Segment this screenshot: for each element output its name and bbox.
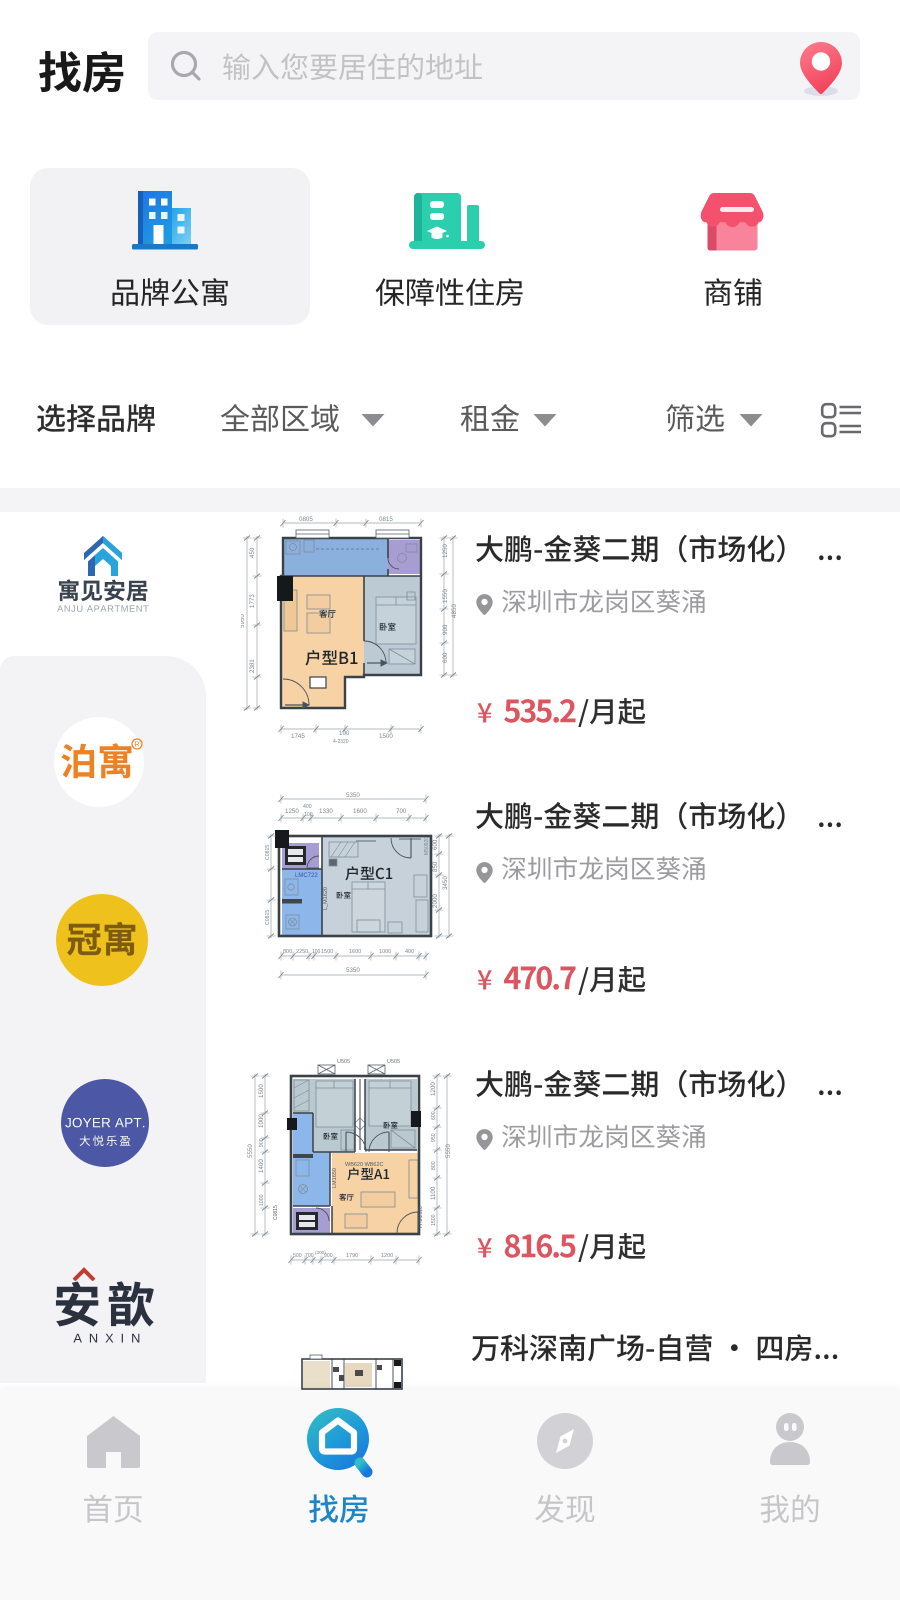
- svg-text:600: 600: [442, 652, 449, 663]
- svg-text:0815: 0815: [379, 516, 393, 523]
- svg-text:LMC722: LMC722: [295, 873, 318, 879]
- svg-text:1790: 1790: [346, 1253, 358, 1259]
- svg-text:5550: 5550: [445, 1144, 452, 1158]
- svg-text:900: 900: [259, 1138, 265, 1147]
- svg-text:100: 100: [312, 949, 321, 955]
- svg-text:4-2320: 4-2320: [333, 739, 349, 745]
- svg-text:FHM2020: FHM2020: [418, 1206, 424, 1228]
- svg-text:C0815: C0815: [265, 910, 271, 925]
- svg-text:5350: 5350: [346, 792, 360, 799]
- svg-text:1200: 1200: [381, 1253, 393, 1259]
- svg-text:100: 100: [304, 812, 313, 818]
- svg-text:600: 600: [431, 1111, 437, 1120]
- svg-text:700: 700: [305, 1253, 314, 1259]
- svg-text:C0815: C0815: [273, 1205, 279, 1220]
- svg-text:LM1650: LM1650: [332, 1168, 338, 1188]
- svg-text:500: 500: [293, 1253, 302, 1259]
- svg-text:1250: 1250: [285, 808, 299, 815]
- svg-text:C0815: C0815: [265, 845, 271, 860]
- svg-text:0805: 0805: [299, 516, 313, 523]
- svg-text:R: R: [134, 742, 139, 749]
- svg-text:600: 600: [432, 839, 439, 850]
- svg-text:850: 850: [432, 861, 439, 872]
- svg-text:5950: 5950: [241, 614, 246, 628]
- svg-text:1500: 1500: [431, 1214, 437, 1226]
- svg-text:1600: 1600: [353, 808, 367, 815]
- svg-text:1550: 1550: [442, 589, 449, 603]
- svg-text:1500: 1500: [379, 733, 393, 740]
- svg-text:1200: 1200: [430, 1082, 437, 1096]
- svg-text:U505: U505: [387, 1059, 400, 1065]
- svg-text:1773: 1773: [249, 594, 256, 608]
- svg-text:400: 400: [303, 804, 312, 810]
- svg-text:1745: 1745: [291, 733, 305, 740]
- svg-text:4850: 4850: [451, 604, 458, 618]
- svg-text:900: 900: [324, 1253, 333, 1259]
- svg-text:U505: U505: [337, 1059, 350, 1065]
- svg-text:1400: 1400: [258, 1159, 265, 1173]
- svg-text:1100: 1100: [430, 1186, 437, 1200]
- svg-text:400: 400: [405, 949, 414, 955]
- svg-text:450: 450: [249, 547, 256, 558]
- svg-text:1500: 1500: [321, 949, 333, 955]
- svg-text:5350: 5350: [346, 967, 360, 974]
- svg-text:1330: 1330: [319, 808, 333, 815]
- svg-text:100: 100: [339, 730, 350, 737]
- svg-text:2381: 2381: [249, 659, 256, 673]
- svg-text:WB620 WB62C: WB620 WB62C: [345, 1162, 384, 1168]
- svg-text:700: 700: [396, 808, 407, 815]
- svg-text:800: 800: [283, 949, 292, 955]
- svg-text:1600: 1600: [349, 949, 361, 955]
- svg-text:2000: 2000: [432, 894, 439, 908]
- svg-text:900: 900: [442, 624, 449, 635]
- svg-text:1000: 1000: [259, 1194, 265, 1206]
- svg-text:5550: 5550: [247, 1144, 254, 1158]
- svg-text:L_M1620: L_M1620: [323, 887, 329, 910]
- svg-text:M50920: M50920: [424, 837, 430, 855]
- svg-text:1500: 1500: [258, 1084, 265, 1098]
- svg-text:950: 950: [431, 1133, 437, 1142]
- svg-text:2250: 2250: [296, 949, 308, 955]
- svg-text:1250: 1250: [442, 544, 449, 558]
- svg-text:1000: 1000: [379, 949, 391, 955]
- svg-text:1000: 1000: [258, 1114, 265, 1128]
- svg-text:800: 800: [431, 1161, 437, 1170]
- svg-text:3450: 3450: [442, 876, 449, 890]
